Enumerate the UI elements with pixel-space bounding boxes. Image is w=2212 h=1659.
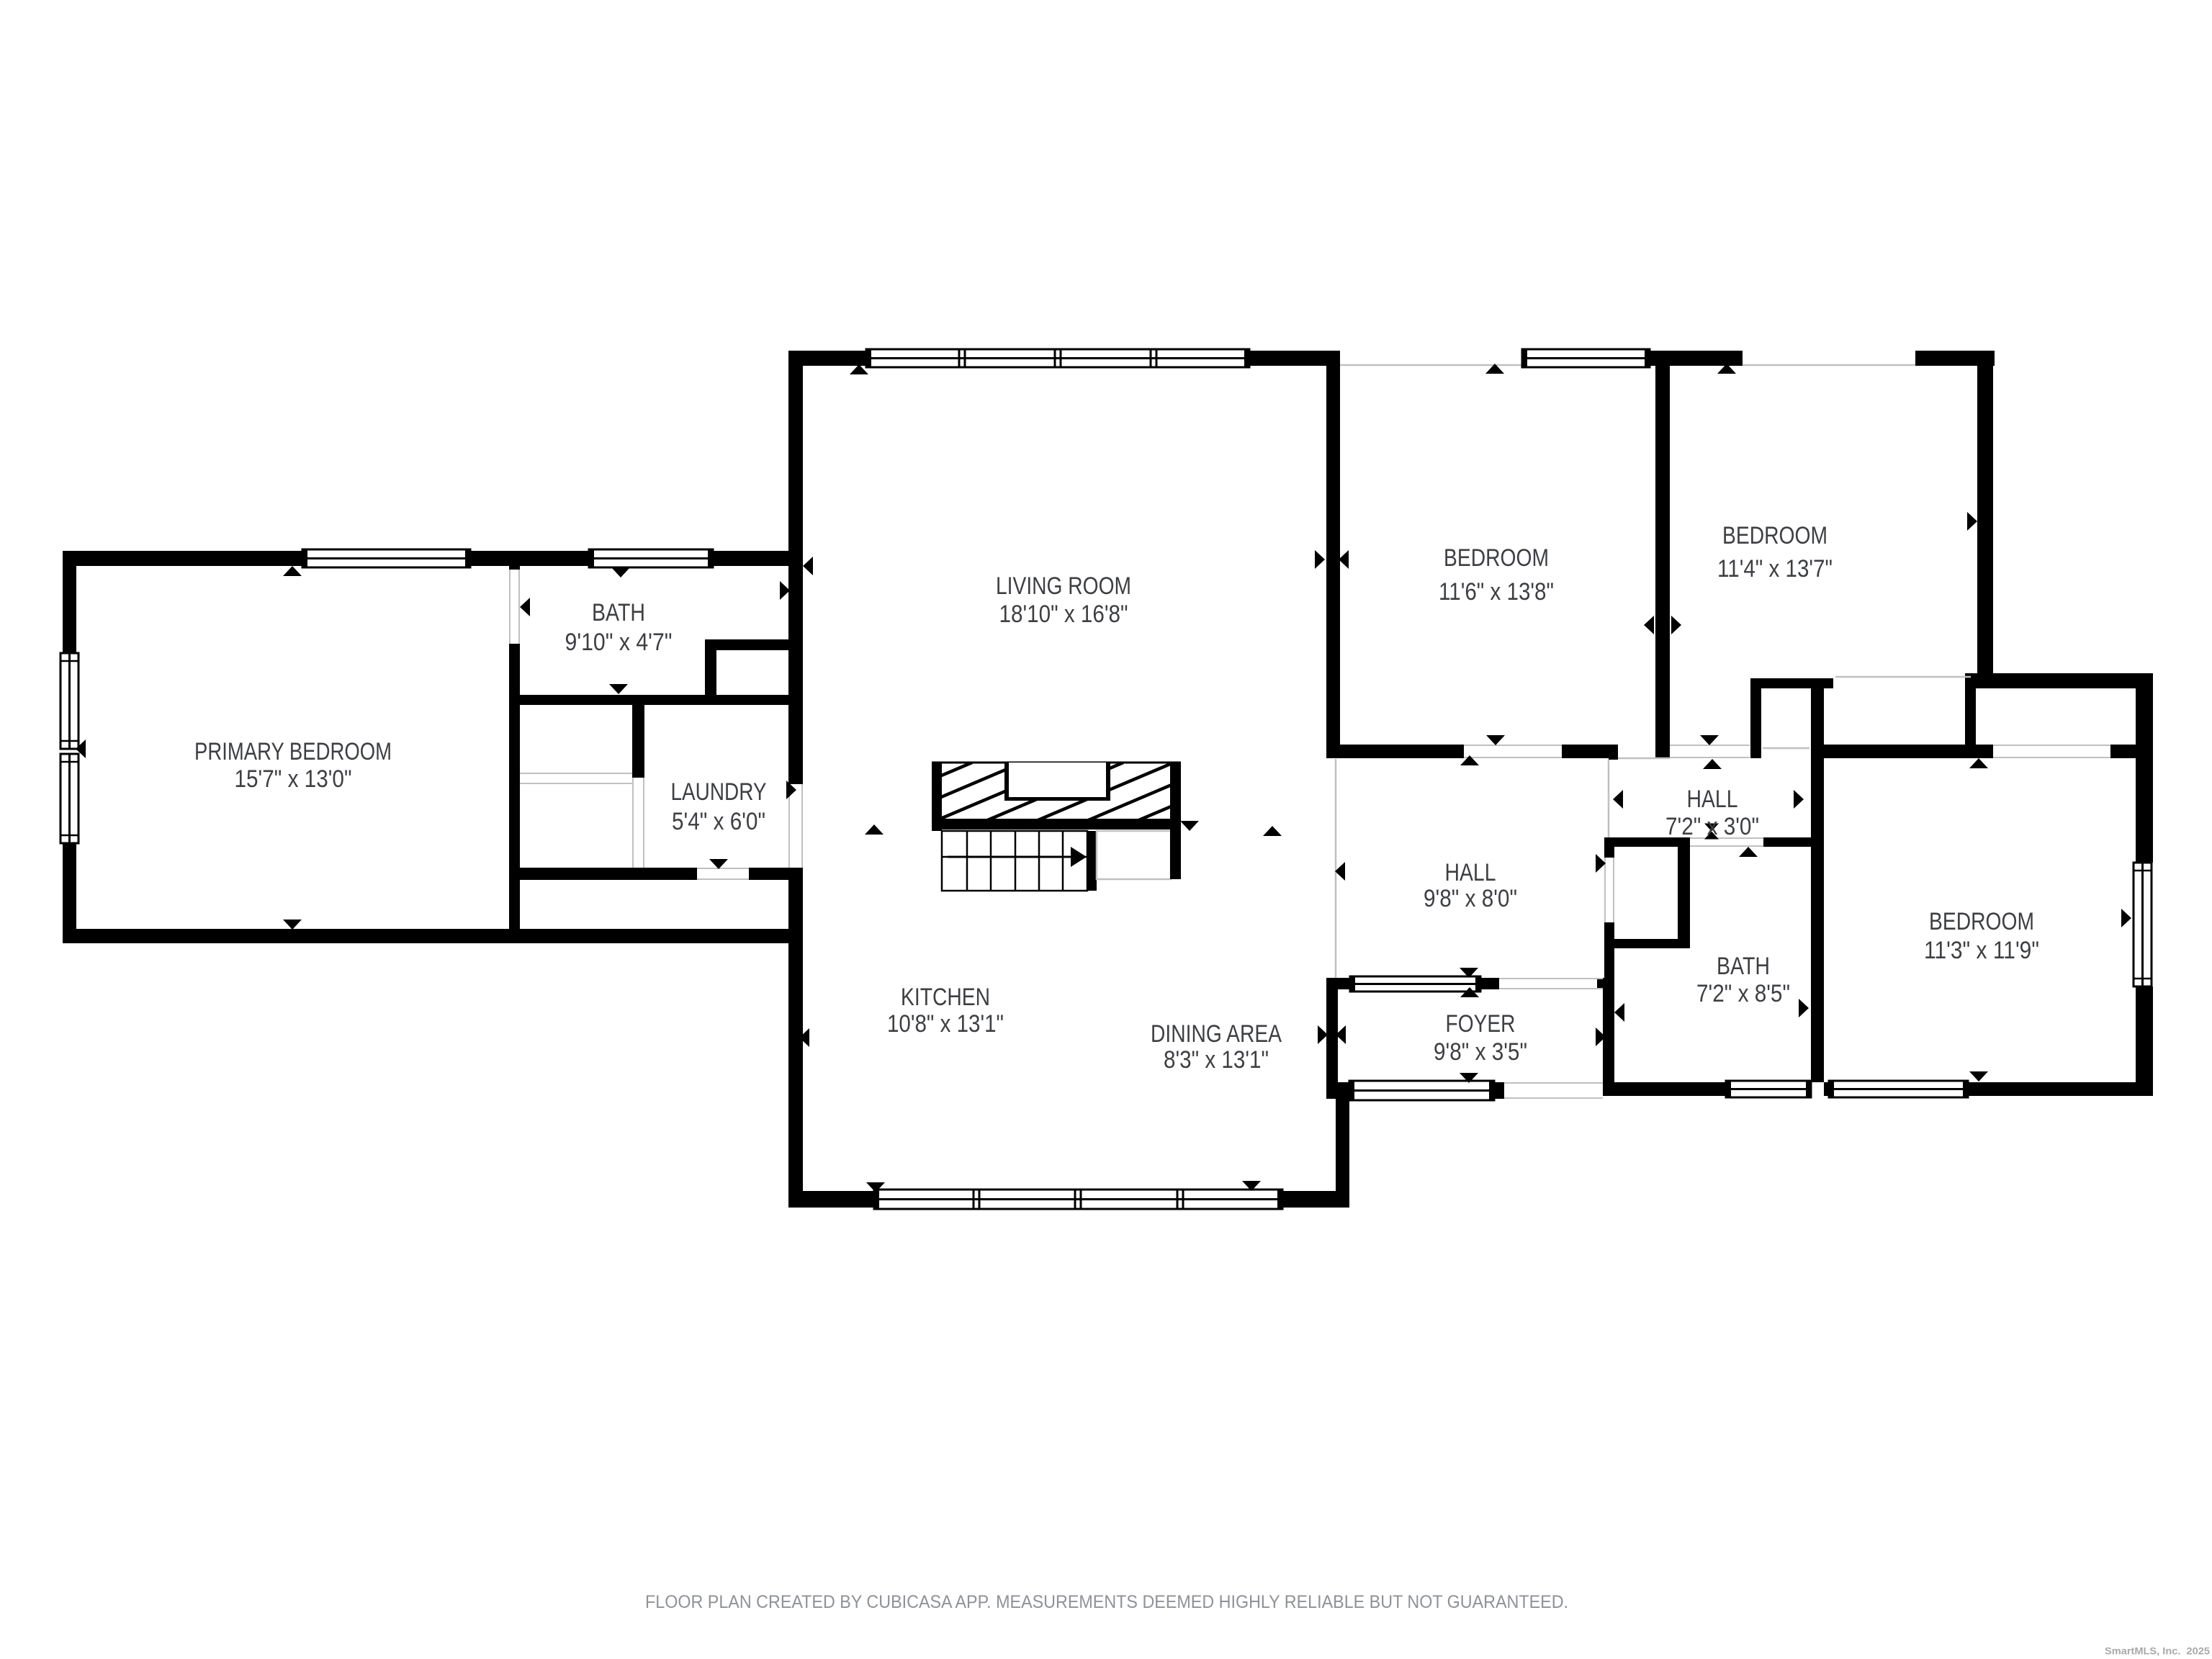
svg-text:HALL: HALL (1445, 859, 1496, 886)
svg-text:9'8" x 8'0": 9'8" x 8'0" (1424, 885, 1517, 912)
svg-text:9'10" x 4'7": 9'10" x 4'7" (565, 629, 673, 656)
svg-text:LAUNDRY: LAUNDRY (671, 778, 767, 806)
svg-text:7'2" x 3'0": 7'2" x 3'0" (1665, 813, 1759, 840)
svg-text:BEDROOM: BEDROOM (1444, 544, 1549, 572)
svg-text:SmartMLS, Inc. 2025: SmartMLS, Inc. 2025 (2105, 1646, 2211, 1657)
svg-text:BATH: BATH (1717, 953, 1770, 980)
svg-text:10'8" x 13'1": 10'8" x 13'1" (887, 1010, 1004, 1038)
svg-text:8'3" x 13'1": 8'3" x 13'1" (1164, 1046, 1269, 1074)
svg-text:FLOOR PLAN CREATED BY CUBICASA: FLOOR PLAN CREATED BY CUBICASA APP. MEAS… (645, 1592, 1568, 1612)
svg-text:KITCHEN: KITCHEN (901, 984, 990, 1011)
svg-text:15'7" x 13'0": 15'7" x 13'0" (235, 765, 352, 793)
svg-text:11'4" x 13'7": 11'4" x 13'7" (1717, 555, 1833, 583)
svg-text:LIVING ROOM: LIVING ROOM (996, 572, 1131, 600)
svg-text:18'10" x 16'8": 18'10" x 16'8" (999, 601, 1128, 628)
svg-text:FOYER: FOYER (1446, 1010, 1516, 1038)
svg-text:DINING AREA: DINING AREA (1151, 1020, 1282, 1048)
svg-text:HALL: HALL (1687, 786, 1738, 813)
svg-text:PRIMARY BEDROOM: PRIMARY BEDROOM (194, 738, 392, 765)
svg-text:7'2" x 8'5": 7'2" x 8'5" (1696, 980, 1790, 1007)
svg-text:9'8" x 3'5": 9'8" x 3'5" (1434, 1038, 1527, 1066)
svg-text:5'4" x 6'0": 5'4" x 6'0" (672, 808, 765, 835)
svg-text:11'3" x 11'9": 11'3" x 11'9" (1924, 937, 2039, 964)
svg-text:BEDROOM: BEDROOM (1722, 522, 1827, 549)
svg-text:BEDROOM: BEDROOM (1929, 908, 2034, 935)
svg-text:11'6" x 13'8": 11'6" x 13'8" (1439, 578, 1554, 606)
svg-text:BATH: BATH (592, 599, 645, 626)
